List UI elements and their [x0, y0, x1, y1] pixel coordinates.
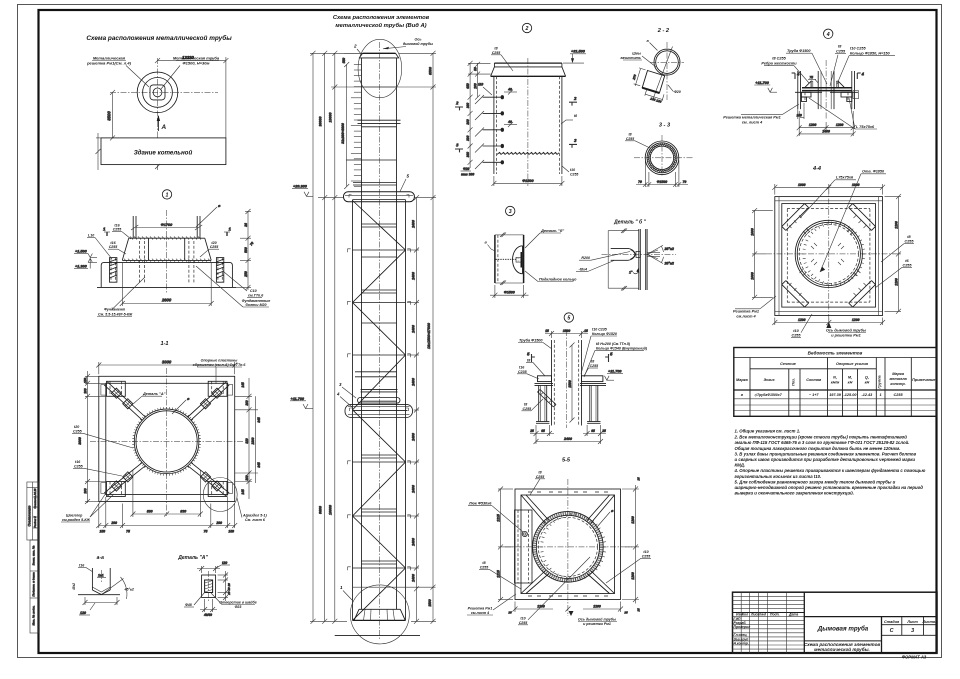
svg-text:Деталь "б": Деталь "б": [540, 228, 564, 233]
svg-text:Дата: Дата: [788, 613, 798, 617]
svg-text:С255: С255: [590, 364, 600, 368]
svg-text:Ф48: Ф48: [185, 603, 192, 607]
svg-text:шарнирно-неподвижной опорой ре: шарнирно-неподвижной опорой решено устан…: [735, 485, 924, 490]
svg-text:830: 830: [180, 510, 186, 514]
svg-text:t20: t20: [222, 561, 227, 565]
svg-text:Аб.18: Аб.18: [33, 488, 37, 497]
svg-text:150: 150: [99, 530, 105, 534]
svg-text:820: 820: [245, 438, 249, 444]
svg-text:25: 25: [529, 429, 534, 433]
svg-text:Лист: Лист: [906, 620, 918, 624]
svg-text:Листов: Листов: [922, 620, 939, 624]
svg-text:Ф20: Ф20: [674, 90, 681, 94]
svg-text:2: 2: [525, 26, 529, 32]
svg-text:Труба Ф1500: Труба Ф1500: [519, 338, 543, 342]
svg-text:45°±2: 45°±2: [124, 588, 134, 592]
svg-text:15: 15: [637, 477, 641, 481]
svg-text:3: 3: [509, 209, 512, 215]
svg-text:Ф1500, Н=30м: Ф1500, Н=30м: [183, 61, 210, 66]
svg-text:Состав: Состав: [806, 378, 822, 382]
svg-text:2400: 2400: [411, 325, 415, 334]
svg-text:Деталь " б ": Деталь " б ": [613, 219, 646, 226]
svg-text:1500: 1500: [568, 380, 572, 388]
svg-text:300: 300: [245, 475, 249, 481]
svg-text:С255: С255: [791, 334, 801, 338]
svg-text:шаг 300: шаг 300: [461, 173, 474, 177]
svg-text:С255: С255: [523, 407, 533, 411]
svg-text:25°±2: 25°±2: [664, 261, 674, 265]
svg-text:197.39: 197.39: [829, 393, 842, 397]
svg-text:Поз.: Поз.: [791, 378, 795, 386]
svg-text:N,: N,: [833, 376, 837, 380]
svg-text:Согласовано: Согласовано: [28, 505, 32, 526]
svg-text:2 - 2: 2 - 2: [657, 28, 670, 34]
svg-text:4: 4: [861, 72, 865, 77]
svg-text:эмалью ПФ-115 ГОСТ 6465-76: эмалью ПФ-115 ГОСТ 6465-76 в 3 слоя по г…: [735, 440, 910, 445]
svg-text:2400: 2400: [411, 220, 415, 229]
svg-text:Группа: Группа: [878, 375, 882, 388]
svg-text:С: С: [890, 628, 894, 634]
svg-text:t10 С235: t10 С235: [592, 328, 608, 332]
svg-text:Ребро жесткости: Ребро жесткости: [761, 62, 797, 66]
svg-text:Инв. № подл.: Инв. № подл.: [32, 605, 36, 625]
svg-text:+20.300: +20.300: [293, 185, 308, 189]
svg-text:№д: №д: [760, 613, 766, 617]
svg-text:С255: С255: [836, 50, 846, 54]
svg-text:Подкладное кольцо: Подкладное кольцо: [539, 277, 577, 281]
svg-text:1200: 1200: [631, 516, 635, 524]
svg-text:1500: 1500: [563, 329, 571, 333]
svg-text:дымовой трубы: дымовой трубы: [403, 42, 433, 46]
svg-text:-12.43: -12.43: [862, 393, 874, 397]
svg-text:145: 145: [241, 382, 245, 388]
svg-text:t10: t10: [793, 329, 799, 333]
svg-text:Решетка Рм1: Решетка Рм1: [733, 310, 759, 314]
svg-text:30000: 30000: [318, 117, 322, 127]
svg-text:Отверстие в шайбе: Отверстие в шайбе: [219, 601, 256, 605]
svg-text:15: 15: [637, 608, 641, 612]
svg-text:1000: 1000: [750, 228, 754, 236]
svg-text:10000: 10000: [329, 113, 333, 123]
svg-text:1200: 1200: [809, 123, 817, 127]
svg-text:С255: С255: [519, 621, 529, 625]
svg-text:40/40: 40/40: [203, 613, 212, 617]
svg-text:250: 250: [244, 271, 248, 278]
svg-text:см.раздел 5-КЖ: см.раздел 5-КЖ: [62, 518, 91, 522]
svg-text:Деталь "А": Деталь "А": [177, 555, 208, 561]
svg-text:С235: С235: [518, 370, 528, 374]
svg-text:С255: С255: [642, 554, 652, 558]
svg-text:1000: 1000: [798, 183, 806, 187]
svg-text:+11.700: +11.700: [755, 81, 769, 85]
svg-text:+31.500: +31.500: [571, 50, 586, 54]
svg-text:25°±2: 25°±2: [664, 247, 674, 251]
svg-text:Кольцо Ф1520: Кольцо Ф1520: [592, 332, 617, 336]
svg-text:см.лист 4: см.лист 4: [471, 611, 489, 615]
svg-text:~ 1+7: ~ 1+7: [809, 393, 820, 397]
svg-text:металлической трубы (Вид А): металлической трубы (Вид А): [335, 22, 426, 29]
svg-text:Марка: Марка: [892, 372, 904, 376]
svg-text:С255: С255: [904, 240, 914, 244]
svg-text:см. лист 4: см. лист 4: [742, 120, 763, 124]
svg-text:Схема расположения элементов: Схема расположения элементов: [333, 15, 430, 21]
svg-text:2400: 2400: [411, 538, 415, 547]
svg-text:M,: M,: [848, 376, 852, 380]
svg-text:Q,: Q,: [865, 376, 869, 380]
svg-text:кН: кН: [865, 381, 870, 385]
svg-text:4: 4: [826, 32, 830, 38]
svg-text:С10: С10: [250, 289, 257, 293]
svg-text:Труба Ф1500: Труба Ф1500: [787, 49, 811, 53]
svg-text:5-5: 5-5: [562, 458, 571, 464]
svg-text:9600: 9600: [319, 506, 323, 514]
svg-text:металлической трубы.: металлической трубы.: [814, 646, 870, 652]
svg-text:200: 200: [215, 521, 222, 525]
svg-text:+11.700: +11.700: [608, 369, 622, 373]
svg-text:КМД.: КМД.: [735, 463, 746, 468]
svg-text:Решетка металлическая Рм1: Решетка металлическая Рм1: [723, 115, 780, 119]
svg-text:и сварных швов производится: и сварных швов производится при разработ…: [735, 457, 916, 462]
svg-text:2400: 2400: [563, 437, 572, 441]
svg-text:65: 65: [541, 429, 545, 433]
svg-text:1200: 1200: [894, 221, 898, 229]
svg-text:5: 5: [407, 174, 410, 179]
svg-text:145: 145: [241, 489, 245, 495]
svg-text:1. Общие указания см. лист: 1. Общие указания см. лист 1.: [735, 429, 801, 434]
svg-text:горизонтальных косынок из л: горизонтальных косынок из листа t10.: [735, 474, 822, 479]
svg-text:Эскиз: Эскиз: [763, 378, 774, 382]
svg-text:1215: 1215: [496, 514, 500, 522]
svg-text:С255: С255: [109, 245, 119, 249]
svg-text:300: 300: [466, 152, 470, 158]
svg-text:Согласов.: Согласов.: [33, 495, 37, 508]
svg-text:3 - 3: 3 - 3: [659, 123, 671, 129]
svg-text:С255: С255: [74, 464, 84, 468]
svg-text:Здание котельной: Здание котельной: [134, 150, 193, 157]
svg-text:1000: 1000: [852, 183, 860, 187]
svg-text:-t8х4: -t8х4: [579, 267, 587, 271]
svg-text:С255: С255: [536, 475, 546, 479]
svg-text:25: 25: [623, 611, 628, 615]
svg-text:1±1: 1±1: [98, 574, 104, 578]
svg-text:Ф23: Ф23: [235, 605, 242, 609]
svg-text:4: 4: [336, 392, 340, 397]
svg-text:36: 36: [244, 223, 248, 227]
svg-text:45±2: 45±2: [72, 583, 76, 591]
svg-text:75: 75: [810, 75, 814, 79]
svg-text:110: 110: [478, 83, 483, 87]
svg-text:+11.700: +11.700: [291, 397, 305, 401]
svg-text:2300: 2300: [251, 437, 255, 445]
svg-text:4. Опорные пластины решетки пр: 4. Опорные пластины решетки привариваютс…: [734, 468, 926, 473]
svg-text:Ось дымовой трубы: Ось дымовой трубы: [578, 618, 616, 622]
svg-text:ФОРМАТ А3: ФОРМАТ А3: [902, 655, 927, 660]
svg-text:5. Для соблюдения равномерного: 5. Для соблюдения равномерного зазора ме…: [735, 479, 896, 484]
svg-text:75: 75: [204, 530, 208, 534]
svg-text:Ф20: Ф20: [463, 167, 470, 171]
svg-text:150: 150: [228, 530, 234, 534]
svg-text:Марка: Марка: [736, 378, 748, 382]
svg-text:зачистить: зачистить: [620, 56, 641, 60]
svg-text:Швеллер: Швеллер: [66, 514, 83, 518]
svg-text:Люк Ф530х6: Люк Ф530х6: [468, 502, 492, 506]
svg-text:L75х75х6: L75х75х6: [836, 176, 854, 180]
svg-text:L 75х75х6: L 75х75х6: [856, 125, 875, 129]
svg-text:830: 830: [147, 510, 153, 514]
svg-text:1500: 1500: [428, 599, 432, 607]
svg-text:t8: t8: [574, 114, 577, 118]
svg-text:С255: С255: [73, 429, 83, 433]
svg-text:2400: 2400: [821, 129, 830, 133]
svg-text:1200: 1200: [852, 318, 860, 322]
svg-text:С255: С255: [626, 137, 634, 141]
svg-text:металла: металла: [889, 377, 906, 381]
svg-text:Дымовая труба: Дымовая труба: [817, 626, 869, 633]
svg-text:Ф1500: Ф1500: [657, 180, 668, 184]
svg-text:15: 15: [584, 329, 588, 333]
svg-text:3000: 3000: [162, 359, 172, 364]
svg-text:См. лист 6: См. лист 6: [245, 518, 266, 522]
svg-text:А(раздел 5-1): А(раздел 5-1): [242, 514, 267, 518]
svg-text:Сечение: Сечение: [780, 362, 796, 366]
svg-text:Лист: Лист: [750, 613, 760, 617]
svg-text:см.ТТп.6: см.ТТп.6: [248, 294, 264, 298]
svg-text:t8 Н=200 (См.ТТп.5): t8 Н=200 (См.ТТп.5): [596, 342, 631, 346]
svg-text:L10: L10: [88, 234, 94, 238]
svg-text:1200: 1200: [537, 605, 545, 609]
svg-text:1°: 1°: [629, 270, 633, 274]
svg-text:33х300=9900: 33х300=9900: [341, 123, 345, 144]
svg-text:1000: 1000: [750, 272, 754, 280]
svg-text:1: 1: [166, 192, 169, 198]
svg-text:18х1500=27000: 18х1500=27000: [427, 323, 431, 349]
svg-text:Решетка Рм1: Решетка Рм1: [468, 607, 493, 611]
svg-text:R200: R200: [581, 256, 590, 260]
svg-text:С255: С255: [210, 245, 220, 249]
svg-text:+1.300: +1.300: [75, 265, 88, 269]
svg-text:Взам. инв. №: Взам. инв. №: [32, 545, 36, 565]
svg-text:70: 70: [638, 180, 642, 184]
svg-text:300: 300: [466, 119, 470, 125]
svg-text:Отв. Ф1850: Отв. Ф1850: [862, 170, 885, 174]
svg-text:кН: кН: [848, 381, 853, 385]
svg-text:2400: 2400: [411, 378, 415, 387]
svg-text:200: 200: [473, 83, 477, 90]
svg-text:300: 300: [245, 400, 249, 406]
svg-text:Стадия: Стадия: [884, 620, 900, 624]
svg-text:1200: 1200: [836, 123, 844, 127]
svg-text:С255: С255: [492, 51, 502, 55]
svg-text:2: 2: [573, 96, 577, 101]
svg-text:Общая толщина лакокрасочного: Общая толщина лакокрасочного покрытия до…: [735, 446, 901, 451]
svg-text:◇ТрубаФ1500х7: ◇ТрубаФ1500х7: [754, 393, 782, 397]
svg-text:Ф1500: Ф1500: [522, 179, 534, 183]
svg-text:Схема расположения металлическ: Схема расположения металлической трубы: [86, 34, 232, 42]
svg-text:С255: С255: [113, 228, 123, 232]
svg-text:С255: С255: [894, 393, 904, 397]
svg-text:Ось дымовой трубы: Ось дымовой трубы: [826, 329, 867, 333]
svg-text:кН/м: кН/м: [831, 381, 840, 385]
svg-text:Фундамент: Фундамент: [104, 308, 126, 312]
svg-text:Опорные усилия: Опорные усилия: [836, 362, 869, 366]
svg-text:1: 1: [880, 393, 882, 397]
svg-text:Опорные пластины: Опорные пластины: [201, 359, 238, 363]
svg-text:200: 200: [110, 521, 117, 525]
svg-text:70: 70: [683, 180, 687, 184]
svg-text:150: 150: [83, 378, 87, 384]
svg-text:см.лист 4: см.лист 4: [736, 314, 756, 318]
svg-text:Подпись и дата: Подпись и дата: [32, 572, 36, 597]
svg-text:300: 300: [83, 488, 87, 494]
svg-text:845: 845: [257, 462, 261, 468]
svg-text:Ведомость элементов: Ведомость элементов: [808, 351, 863, 356]
svg-text:2: 2: [353, 44, 357, 49]
svg-text:С255: С255: [570, 172, 578, 176]
svg-text:Раздел 5: Раздел 5: [33, 516, 37, 528]
svg-text:300: 300: [83, 388, 87, 394]
svg-text:1200: 1200: [631, 572, 635, 580]
svg-text:50: 50: [473, 67, 477, 71]
svg-text:С255: С255: [902, 263, 912, 267]
svg-text:Кольцо Ф1850, Н=150: Кольцо Ф1850, Н=150: [850, 52, 891, 56]
svg-text:Деталь "А": Деталь "А": [142, 392, 166, 396]
svg-text:2400: 2400: [411, 485, 415, 494]
svg-text:1200: 1200: [894, 278, 898, 286]
svg-text:2400: 2400: [411, 433, 415, 442]
svg-text:3000: 3000: [78, 437, 82, 445]
svg-text:А: А: [161, 124, 167, 131]
svg-text:Ф1700: Ф1700: [161, 223, 173, 227]
svg-text:300: 300: [466, 103, 470, 109]
svg-text:2: 2: [455, 101, 459, 106]
svg-text:Примечание: Примечание: [912, 378, 935, 382]
svg-text:10000: 10000: [329, 505, 333, 515]
svg-text:С255: С255: [480, 565, 490, 569]
svg-text:2600: 2600: [161, 298, 172, 303]
svg-text:300: 300: [466, 135, 470, 141]
svg-text:t8 С255: t8 С255: [772, 57, 786, 61]
svg-text:3. В узлах даны принципиаль: 3. В узлах даны принципиальные решения с…: [735, 451, 917, 456]
svg-text:4-4: 4-4: [812, 166, 822, 172]
svg-text:t8: t8: [628, 132, 631, 136]
svg-text:1215: 1215: [496, 570, 500, 578]
svg-text:t10 С255: t10 С255: [850, 47, 867, 51]
svg-text:См. 5.5-15.497-5-КЖ: См. 5.5-15.497-5-КЖ: [98, 313, 133, 317]
svg-text:выверки и окончательного закре: выверки и окончательного закрепления кон…: [735, 491, 854, 496]
svg-text:25: 25: [601, 429, 606, 433]
svg-text:2. Все металлоконструкции (кр: 2. Все металлоконструкции (кроме ствола …: [734, 435, 908, 440]
svg-text:а-а: а-а: [97, 555, 104, 561]
svg-text:845: 845: [257, 417, 261, 423]
svg-text:Подп.: Подп.: [770, 613, 780, 617]
svg-text:120: 120: [80, 611, 86, 615]
svg-text:t8: t8: [527, 359, 530, 363]
svg-text:Кол: Кол: [742, 613, 749, 617]
svg-text:65: 65: [591, 429, 595, 433]
svg-text:решетка Рм1(См. л.4): решетка Рм1(См. л.4): [86, 61, 131, 66]
svg-text:и решетки Рм1: и решетки Рм1: [583, 622, 611, 626]
svg-text:и решетки Рм1: и решетки Рм1: [831, 333, 860, 337]
svg-text:Швы: Швы: [632, 52, 641, 56]
svg-text:констр.: констр.: [890, 382, 905, 386]
svg-text:75: 75: [126, 530, 130, 534]
svg-text:1200: 1200: [798, 318, 806, 322]
svg-text:2400: 2400: [411, 574, 415, 583]
svg-text:Ось: Ось: [415, 38, 422, 42]
svg-text:1: 1: [340, 585, 343, 590]
svg-text:+1.500: +1.500: [75, 250, 88, 254]
svg-text:болты М20: болты М20: [246, 303, 267, 307]
svg-text:Н.контр.: Н.контр.: [734, 641, 749, 645]
svg-text:25: 25: [507, 611, 512, 615]
svg-text:550: 550: [342, 58, 346, 64]
svg-text:15: 15: [545, 329, 549, 333]
svg-text:20 50 20: 20 50 20: [227, 583, 231, 596]
svg-text:2400: 2400: [411, 272, 415, 281]
svg-text:Проверил: Проверил: [734, 625, 752, 629]
svg-text:5: 5: [567, 316, 570, 322]
svg-text:Кольцо Ф1540 (Внутренний): Кольцо Ф1540 (Внутренний): [596, 346, 648, 350]
svg-text:-125.00: -125.00: [844, 393, 858, 397]
svg-text:8500: 8500: [107, 111, 112, 121]
svg-text:500: 500: [244, 247, 248, 253]
svg-text:650: 650: [466, 83, 470, 89]
svg-text:Ф1500: Ф1500: [504, 291, 515, 295]
svg-text:3: 3: [911, 628, 914, 634]
svg-text:6500: 6500: [429, 67, 433, 75]
svg-text:1-1: 1-1: [160, 341, 168, 347]
svg-text:1200: 1200: [593, 605, 601, 609]
